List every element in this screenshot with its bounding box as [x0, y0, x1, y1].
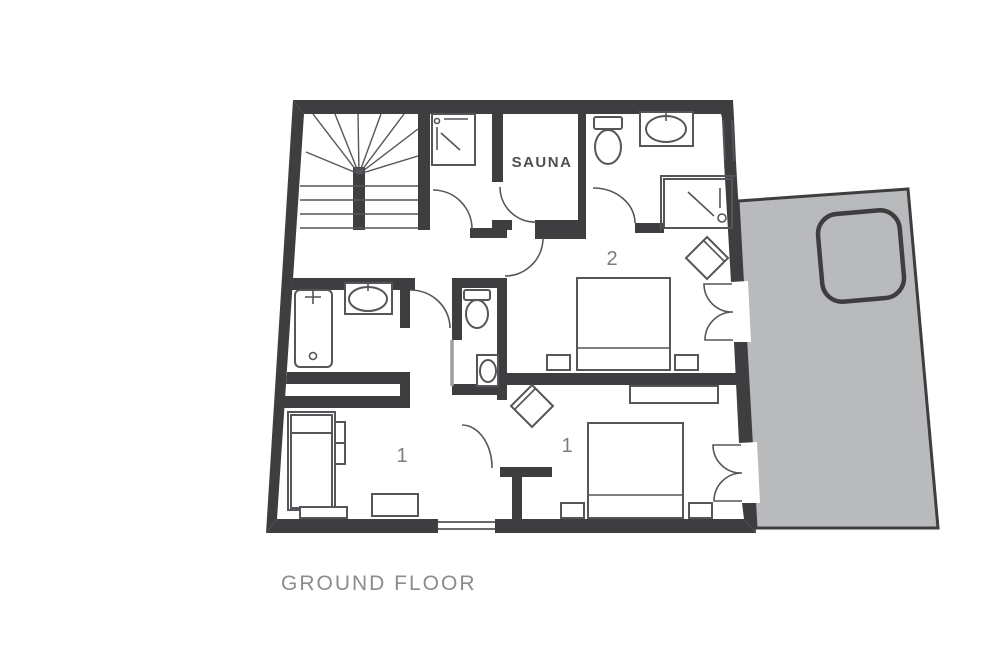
wall-bedroom1-stub	[500, 467, 552, 477]
bedroom2-door-arc	[505, 238, 543, 276]
wall-stair-shower	[418, 114, 430, 230]
sauna-label: SAUNA	[512, 154, 573, 171]
wall-bedroom1-left	[512, 477, 522, 519]
lounge-label: 1	[396, 445, 407, 467]
sofa-footrest	[300, 507, 347, 518]
plan-title: GROUND FLOOR	[281, 572, 477, 595]
bedroom1-french-door	[713, 445, 742, 501]
corner-shower-lines	[688, 188, 720, 216]
toilet-bowl-icon	[595, 130, 621, 164]
bedroom2-french-door	[704, 284, 733, 340]
corner-shower-tray-icon	[664, 179, 732, 228]
wall-sauna-right	[578, 114, 586, 230]
wall-bottom-left	[266, 519, 438, 533]
bed1-nightstand-right	[689, 503, 712, 518]
wardrobe-icon	[630, 386, 718, 403]
bed1-nightstand-left	[561, 503, 584, 518]
wc	[464, 290, 498, 386]
wc-cistern-icon	[464, 290, 490, 300]
bedroom1-door-arc	[462, 425, 492, 468]
bedroom2-label: 2	[606, 248, 617, 270]
bedroom1-label: 1	[561, 435, 572, 457]
wc-bowl-icon	[466, 300, 488, 328]
terrace-deck	[738, 189, 938, 528]
terrace	[738, 189, 938, 528]
corner-shower-drain-icon	[718, 214, 726, 222]
stair-winders	[306, 114, 418, 174]
wall-bottom-right	[495, 519, 756, 533]
floor-plan: SAUNA 2 1 1 GROUND FLOOR	[0, 0, 1000, 667]
wall-hall-stub	[470, 228, 507, 238]
threshold-bedroom2	[730, 281, 751, 342]
window-bottom	[438, 522, 495, 529]
wall-bathroom-top-bottom	[635, 223, 664, 233]
wall-lounge-top	[284, 396, 408, 408]
floor-plan-page: SAUNA 2 1 1 GROUND FLOOR	[0, 0, 1000, 667]
toilet-cistern-icon	[594, 117, 622, 129]
wall-bedrooms-divider	[505, 373, 738, 385]
wall-bathroom-right	[400, 278, 410, 328]
bathroom	[295, 283, 392, 367]
bed1-icon	[588, 423, 683, 518]
shower-room	[432, 114, 475, 165]
bathroom-door-arc	[410, 290, 450, 328]
wall-shower-sauna	[492, 114, 503, 182]
bed2-nightstand-right	[675, 355, 698, 370]
threshold-bedroom1	[739, 442, 760, 503]
sofa-armrest-top	[335, 422, 345, 443]
bedroom-1	[511, 385, 718, 518]
shower-tray-icon	[432, 114, 475, 165]
top-bathroom-door-arc	[593, 188, 635, 223]
sofa-armrest-bottom	[335, 443, 345, 464]
wall-connector	[400, 372, 410, 408]
bed2-nightstand-left	[547, 355, 570, 370]
bench-icon	[372, 494, 418, 516]
bedroom-2	[547, 237, 728, 370]
shower-room-door-arc	[433, 190, 472, 229]
wc-basin-icon	[480, 360, 496, 382]
sofa-icon	[288, 412, 335, 510]
wall-bathroom-bottom	[286, 372, 410, 384]
top-bathroom	[594, 112, 735, 230]
sauna-door-arc	[500, 187, 536, 222]
bed2-icon	[577, 278, 670, 370]
stair-newel-post	[353, 167, 365, 230]
